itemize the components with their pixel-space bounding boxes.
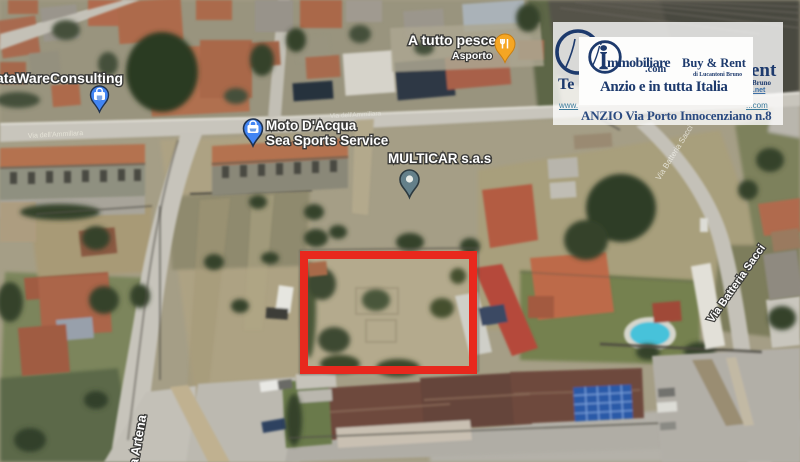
svg-text:Asporto: Asporto (452, 50, 492, 62)
svg-text:MULTICAR s.a.s: MULTICAR s.a.s (388, 151, 491, 166)
svg-text:Moto D'Acqua: Moto D'Acqua (266, 118, 357, 133)
svg-text:A tutto pesce: A tutto pesce (408, 32, 496, 48)
svg-text:Sea Sports Service: Sea Sports Service (266, 133, 389, 148)
svg-text:ataWareConsulting: ataWareConsulting (0, 70, 123, 86)
